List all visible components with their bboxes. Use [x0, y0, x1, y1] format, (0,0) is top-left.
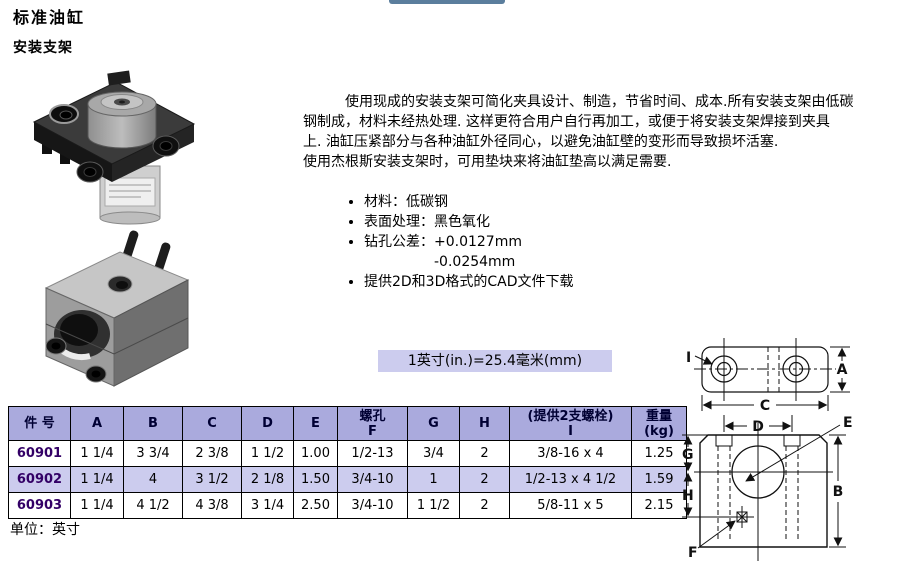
block-bracket-photo	[8, 226, 220, 398]
col-header-i: (提供2支螺栓) I	[510, 407, 632, 441]
bullet-tolerance: 钻孔公差：+0.0127mm -0.0254mm	[364, 232, 574, 272]
unit-conversion-note: 1英寸(in.)=25.4毫米(mm)	[378, 350, 612, 372]
table-row: 60903 1 1/4 4 1/2 4 3/8 3 1/4 2.50 3/4-1…	[9, 493, 687, 519]
cell-e: 2.50	[294, 493, 338, 519]
col-header-d: D	[242, 407, 294, 441]
dimension-diagram: I A C D E G H B F	[680, 335, 909, 566]
counterbore-hole	[50, 105, 78, 123]
cell-weight: 1.25	[632, 441, 687, 467]
diagram-label-i: I	[686, 350, 691, 366]
intro-line: 上. 油缸压紧部分与各种油缸外径同心，以避免油缸壁的变形而导致损坏活塞.	[303, 132, 909, 152]
part-number: 60902	[9, 467, 71, 493]
page-title: 标准油缸	[13, 4, 85, 28]
diagram-label-g: G	[682, 447, 694, 463]
socket-screw	[86, 366, 106, 382]
cell-e: 1.50	[294, 467, 338, 493]
diagram-lines	[682, 338, 850, 561]
col-header-part: 件 号	[9, 407, 71, 441]
block-bracket-illustration	[8, 226, 220, 398]
diagram-label-h: H	[682, 488, 694, 504]
diagram-label-e: E	[843, 415, 853, 431]
cell-c: 2 3/8	[183, 441, 242, 467]
spec-bullet-list: 材料：低碳钢 表面处理：黑色氧化 钻孔公差：+0.0127mm -0.0254m…	[330, 192, 574, 292]
cell-g: 3/4	[408, 441, 460, 467]
cell-f: 3/4-10	[338, 467, 408, 493]
intro-line: 钢制成，材料未经热处理. 这样更符合用户自行再加工，或便于将安装支架焊接到夹具	[303, 112, 909, 132]
col-header-a: A	[71, 407, 124, 441]
cell-c: 4 3/8	[183, 493, 242, 519]
diagram-label-b: B	[833, 484, 844, 500]
cell-e: 1.00	[294, 441, 338, 467]
diagram-label-c: C	[760, 398, 770, 414]
table-header-row: 件 号 A B C D E 螺孔 F G H (提供2支螺栓) I 重量 (kg…	[9, 407, 687, 441]
diagram-label-f: F	[688, 545, 698, 561]
bullet-text: 表面处理：黑色氧化	[364, 214, 490, 230]
cell-a: 1 1/4	[71, 467, 124, 493]
bracket-with-cylinder-illustration	[8, 60, 204, 226]
intro-paragraph: 使用现成的安装支架可简化夹具设计、制造，节省时间、成本.所有安装支架由低碳 钢制…	[303, 92, 909, 172]
socket-screw	[46, 338, 66, 354]
bullet-material: 材料：低碳钢	[364, 192, 574, 212]
intro-line: 使用现成的安装支架可简化夹具设计、制造，节省时间、成本.所有安装支架由低碳	[303, 92, 909, 112]
cell-i: 1/2-13 x 4 1/2	[510, 467, 632, 493]
catalog-page: 标准油缸 安装支架	[0, 0, 909, 566]
cell-f: 1/2-13	[338, 441, 408, 467]
cell-c: 3 1/2	[183, 467, 242, 493]
bullet-cad-download: 提供2D和3D格式的CAD文件下载	[364, 272, 574, 292]
dimension-drawing: I A C D E G H B F	[680, 335, 909, 566]
col-header-h: H	[460, 407, 510, 441]
cell-i: 3/8-16 x 4	[510, 441, 632, 467]
cell-h: 2	[460, 467, 510, 493]
cell-a: 1 1/4	[71, 493, 124, 519]
part-number: 60901	[9, 441, 71, 467]
cell-g: 1	[408, 467, 460, 493]
cell-d: 1 1/2	[242, 441, 294, 467]
diagram-label-a: A	[837, 362, 848, 378]
clamp-cylinder	[88, 92, 156, 148]
col-header-g: G	[408, 407, 460, 441]
bullet-surface: 表面处理：黑色氧化	[364, 212, 574, 232]
cell-d: 3 1/4	[242, 493, 294, 519]
bullet-text: 材料：低碳钢	[364, 194, 448, 210]
cell-h: 2	[460, 493, 510, 519]
cell-a: 1 1/4	[71, 441, 124, 467]
cell-h: 2	[460, 441, 510, 467]
cell-f: 3/4-10	[338, 493, 408, 519]
cell-b: 4 1/2	[124, 493, 183, 519]
socket-screw	[153, 136, 179, 156]
col-header-f: 螺孔 F	[338, 407, 408, 441]
cell-d: 2 1/8	[242, 467, 294, 493]
cell-b: 4	[124, 467, 183, 493]
col-header-b: B	[124, 407, 183, 441]
partial-toolbar-remnant	[389, 0, 505, 4]
col-header-e: E	[294, 407, 338, 441]
cell-g: 1 1/2	[408, 493, 460, 519]
col-header-weight: 重量 (kg)	[632, 407, 687, 441]
unit-note: 单位：英寸	[10, 519, 80, 539]
col-header-c: C	[183, 407, 242, 441]
bullet-text: 提供2D和3D格式的CAD文件下载	[364, 274, 574, 290]
bracket-with-cylinder-photo	[8, 60, 204, 226]
cell-weight: 1.59	[632, 467, 687, 493]
diagram-label-d: D	[752, 419, 764, 435]
table-row: 60901 1 1/4 3 3/4 2 3/8 1 1/2 1.00 1/2-1…	[9, 441, 687, 467]
spec-table: 件 号 A B C D E 螺孔 F G H (提供2支螺栓) I 重量 (kg…	[8, 406, 687, 519]
socket-screw	[77, 162, 103, 182]
table-row: 60902 1 1/4 4 3 1/2 2 1/8 1.50 3/4-10 1 …	[9, 467, 687, 493]
cell-weight: 2.15	[632, 493, 687, 519]
intro-line: 使用杰根斯安装支架时，可用垫块来将油缸垫高以满足需要.	[303, 152, 909, 172]
bullet-text: 钻孔公差：+0.0127mm	[364, 234, 522, 250]
threaded-hole	[108, 276, 132, 292]
plate-tab	[107, 71, 130, 86]
part-number: 60903	[9, 493, 71, 519]
section-title: 安装支架	[13, 37, 73, 57]
cell-i: 5/8-11 x 5	[510, 493, 632, 519]
tolerance-second-line: -0.0254mm	[434, 252, 574, 272]
cell-b: 3 3/4	[124, 441, 183, 467]
